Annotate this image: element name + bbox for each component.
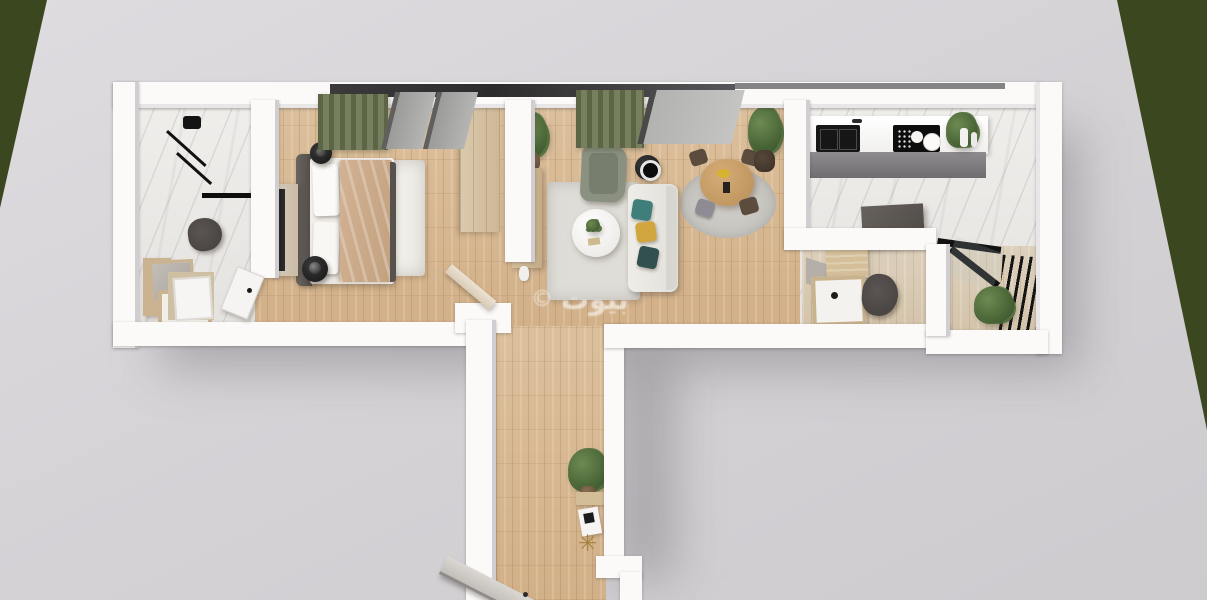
entry-door-panel: [173, 276, 214, 322]
corridor-shadow: [615, 360, 675, 580]
sofa-pillow-dark: [636, 245, 660, 269]
wall-bathroom2-top: [784, 228, 936, 250]
wall-left: [113, 82, 139, 348]
hallway-star-decor-icon: ✳: [578, 533, 597, 556]
watermark: © بيوت: [531, 280, 671, 318]
side-table-lamp-icon: [640, 160, 661, 181]
kitchen-bottle-icon-2: [971, 132, 977, 147]
living-window-panel: [637, 90, 744, 144]
kitchen-cabinet-front: [800, 152, 986, 178]
door-handle-dot: [247, 288, 252, 293]
dining-bowl-icon: [717, 169, 730, 178]
floor-plan-render: ✳ © بيوت: [0, 0, 1207, 600]
dining-plant: [748, 106, 782, 154]
balcony-plant: [974, 286, 1014, 324]
kitchen-bottle-icon: [960, 128, 968, 147]
sofa-backrest: [666, 186, 677, 290]
living-curtain: [576, 90, 644, 148]
wall-hallway-left: [466, 320, 496, 600]
console-vase-icon: [519, 266, 529, 281]
window-ledge-thin-strip: [735, 83, 1005, 89]
nightstand-lamp-icon-2: [309, 262, 321, 274]
hallway-magazine-print: [583, 512, 595, 524]
grass-patch-right: [1110, 0, 1207, 436]
dining-plant-pot: [754, 150, 775, 172]
shower-head-icon: [183, 116, 201, 129]
kitchen-plate-small: [911, 131, 923, 143]
kitchen-plate-large: [923, 133, 941, 151]
wall-bottom-east: [604, 324, 950, 348]
bedroom-curtain: [318, 94, 388, 150]
hallway-shelf: [576, 492, 604, 505]
wall-bathroom2-balcony: [926, 244, 950, 336]
wall-bedroom-living: [505, 100, 535, 262]
wall-bottom-west: [113, 322, 479, 346]
kitchen-sink-basin-right: [839, 129, 857, 150]
watermark-text: بيوت: [561, 283, 629, 316]
grass-patch-top-left: [0, 0, 60, 210]
bed-frame-edge: [390, 162, 396, 282]
dining-cup-icon: [723, 182, 730, 193]
bathroom2-sink: [811, 275, 867, 327]
wall-hallway-right-lower: [620, 572, 642, 600]
coffee-table-plant-icon: [586, 219, 600, 232]
wall-hallway-right: [604, 324, 624, 570]
kitchen-faucet-icon: [852, 119, 862, 123]
kitchen-sink-basin-left: [820, 129, 838, 150]
wall-bathroom1-bedroom: [251, 100, 279, 278]
wall-right: [1036, 82, 1062, 354]
coffee-table: [572, 209, 620, 257]
cooktop-knobs: [897, 129, 911, 148]
sofa-pillow-yellow: [635, 221, 657, 243]
armchair-cushion: [589, 153, 618, 194]
watermark-copyright-icon: ©: [531, 287, 553, 312]
sofa-pillow-teal: [631, 199, 654, 222]
bathroom2-faucet-icon: [831, 292, 838, 299]
bed-pillow-top: [312, 164, 340, 217]
wall-living-kitchen: [784, 100, 810, 248]
bed-blanket: [340, 160, 392, 282]
